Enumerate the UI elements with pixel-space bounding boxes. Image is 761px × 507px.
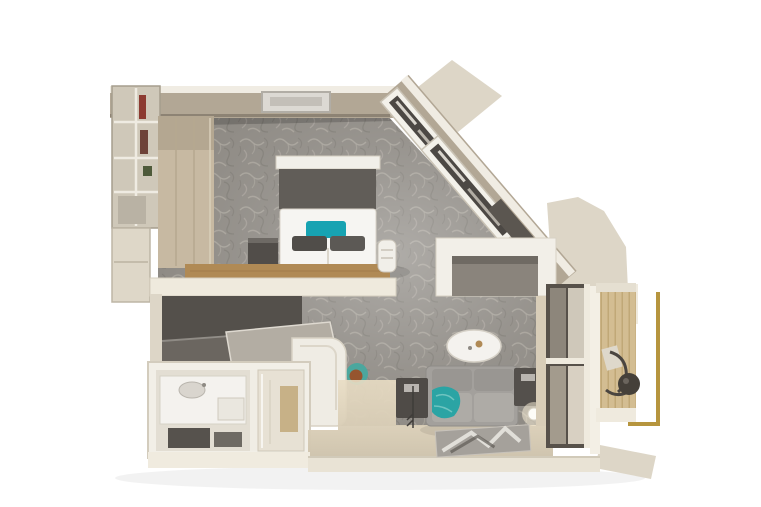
floor-plan-canvas [0, 0, 761, 507]
balcony-inner-wall [590, 286, 600, 454]
gold-railing-vertical [656, 292, 660, 426]
sliding-glass-door [536, 284, 590, 448]
sink [179, 382, 205, 398]
oval-coffee-table [447, 330, 501, 362]
shelf-item-red [139, 95, 146, 119]
glass-pane-1 [550, 288, 566, 360]
shelf-item-maroon [140, 130, 148, 154]
balcony [590, 283, 660, 454]
dark-floor-mat [168, 428, 210, 448]
left-table-tray [404, 384, 419, 392]
dark-floor-mat-2 [214, 432, 242, 447]
headboard-shelf [276, 156, 380, 169]
open-shelf-unit [112, 86, 160, 302]
door-transom [546, 358, 590, 364]
shelf-item-green [143, 166, 152, 176]
sofa-seat-right [474, 393, 514, 422]
faucet [202, 383, 206, 387]
right-table-tray [521, 374, 535, 381]
gray-pillow-right [330, 236, 365, 251]
gray-pillow-left [292, 236, 327, 251]
glass-pane-4 [568, 366, 586, 444]
sofa-back-cushion-right [474, 369, 514, 391]
table-decor [476, 341, 483, 348]
bathroom [148, 362, 310, 458]
curtain [536, 296, 546, 426]
left-cabinet [112, 228, 150, 302]
vanity-drawer [218, 398, 244, 420]
white-bedside-stool [378, 240, 396, 272]
ceiling-light-panel [270, 97, 322, 106]
balcony-bottom-wall [596, 408, 636, 422]
gold-railing-horizontal [628, 422, 660, 426]
teal-accent-pillow [306, 221, 346, 238]
floor-plan-render [0, 0, 761, 507]
shelf-basket [118, 196, 146, 224]
glass-pane-2 [568, 288, 586, 360]
closet-panels [158, 116, 214, 268]
round-side-table [618, 373, 640, 395]
two-seat-sofa [426, 366, 518, 426]
divider-wall [150, 278, 396, 296]
headboard [279, 169, 376, 209]
shower-partition [250, 370, 258, 451]
glass-pane-3 [550, 366, 566, 444]
shower-fittings [280, 386, 298, 432]
